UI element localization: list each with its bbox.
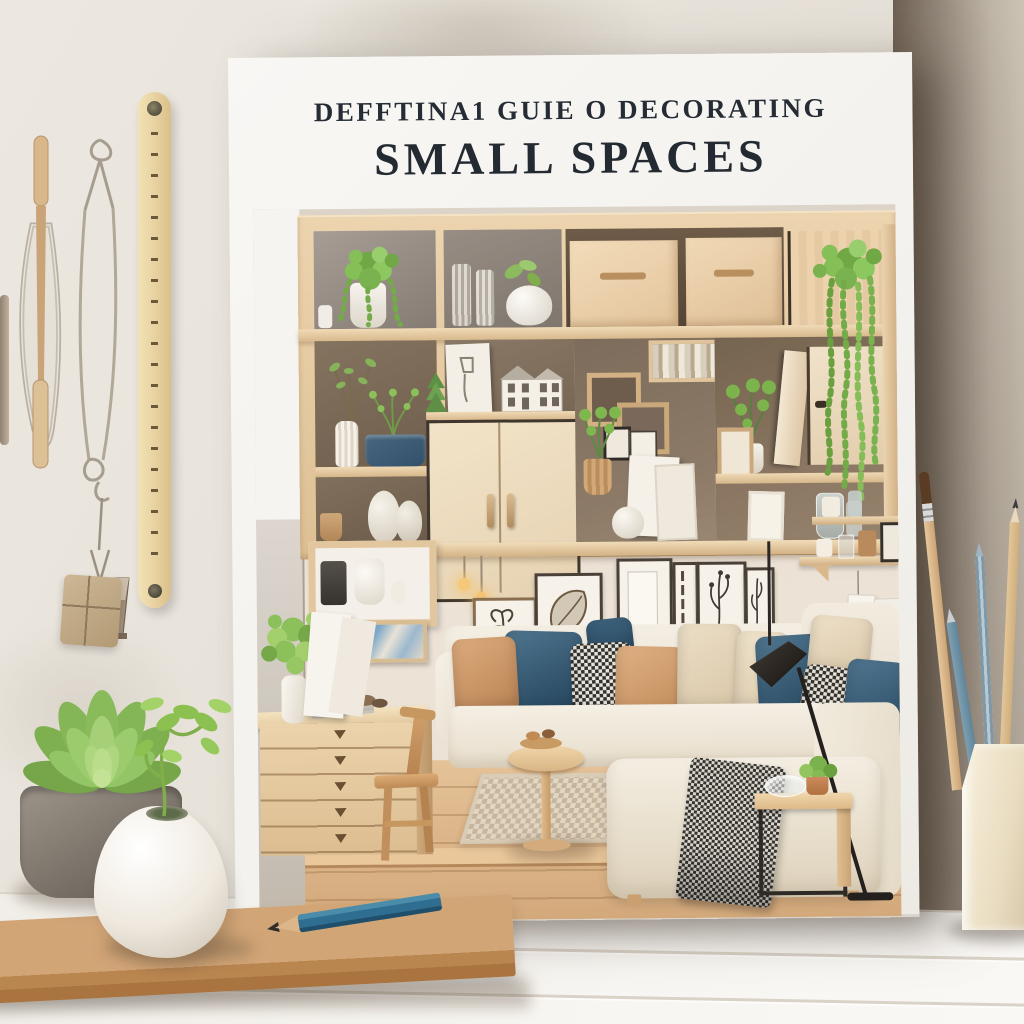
coffee-maker-mini [320,561,346,605]
side-table-crossbar [759,891,847,896]
cabinet-handle-right [507,494,514,528]
shelf-bracket [812,566,828,582]
poster-title-line1: DEFFTINA1 GUIE O DECORATING [228,92,912,129]
frame-mat-inner [627,571,657,627]
lamp-hanger-rod [767,541,771,645]
poster-left-margin [253,209,302,519]
side-table-side-panel [837,807,852,887]
pillow-beige-1 [677,624,742,715]
side-table-plant-pot [806,777,828,795]
bread-item-1 [526,731,540,740]
shelf-dark-frame [880,522,901,562]
chair-stretcher [385,820,433,827]
interior-scene [253,204,901,922]
white-jug [354,559,384,605]
shelf-mug [822,497,840,517]
glass-vase-2 [476,270,494,326]
tan-mini-frame [717,427,753,479]
niche-plant [575,403,624,461]
shelf-wood-item [858,530,876,556]
coffee-table-leg [541,765,551,845]
storage-box-1-handle [600,272,646,279]
cabinet-handle-left [487,494,494,528]
side-table-leg-left [759,809,764,897]
blue-pot-plant-sprigs [363,384,425,439]
storage-box-1 [570,240,679,327]
small-terracotta-pot [320,513,342,541]
drawer-top-vase [281,675,306,723]
panel-sketch [453,350,484,408]
ruler-hole-bottom [148,584,162,598]
poster-photo-scene: DEFFTINA1 GUIE O DECORATING SMALL SPACES [0,0,1024,1024]
parcel-string [60,574,123,648]
miniature-dollhouse [498,363,566,414]
ridged-white-vase [335,421,358,467]
sprout-plant [112,690,252,822]
blue-plant-pot [365,434,425,467]
lower-white-frame [747,491,784,542]
white-gourd-ornament [612,506,644,538]
storage-box-2-handle [714,269,754,276]
trailing-plant-left [320,236,421,329]
storage-box-2 [686,237,783,326]
lamp-base [847,892,893,900]
sculpture-leaves [500,255,544,297]
hanging-rod [0,295,9,445]
leaning-frame-2 [654,463,697,541]
shelf-cup [816,539,832,557]
shelf-glass [838,535,854,559]
books-nook [648,340,720,383]
ruler-tick-marks [151,132,158,572]
wooden-ruler [138,92,171,608]
pendant-bulb-1 [459,578,470,591]
hanging-print-wire [857,571,858,595]
ribbed-pot [584,459,612,495]
bread-item-2 [542,729,555,738]
egg-ornament [391,580,407,604]
sofa-foot-1 [627,894,641,906]
pencil-vase [962,744,1024,930]
gourd-vase-2 [396,500,422,542]
pendant-cord-1 [463,556,465,580]
poster-title-line2: SMALL SPACES [229,128,913,187]
shelf-bottle [848,490,862,516]
glass-vase-1 [452,264,472,326]
poster: DEFFTINA1 GUIE O DECORATING SMALL SPACES [228,52,920,923]
side-table-top [754,793,852,810]
pendant-cord-2 [480,556,482,594]
pillow-camel-left [451,636,520,716]
trailing-plant-right [794,230,899,531]
paintbrush-ferrule [922,503,934,522]
ruler-hole-top [147,101,162,116]
